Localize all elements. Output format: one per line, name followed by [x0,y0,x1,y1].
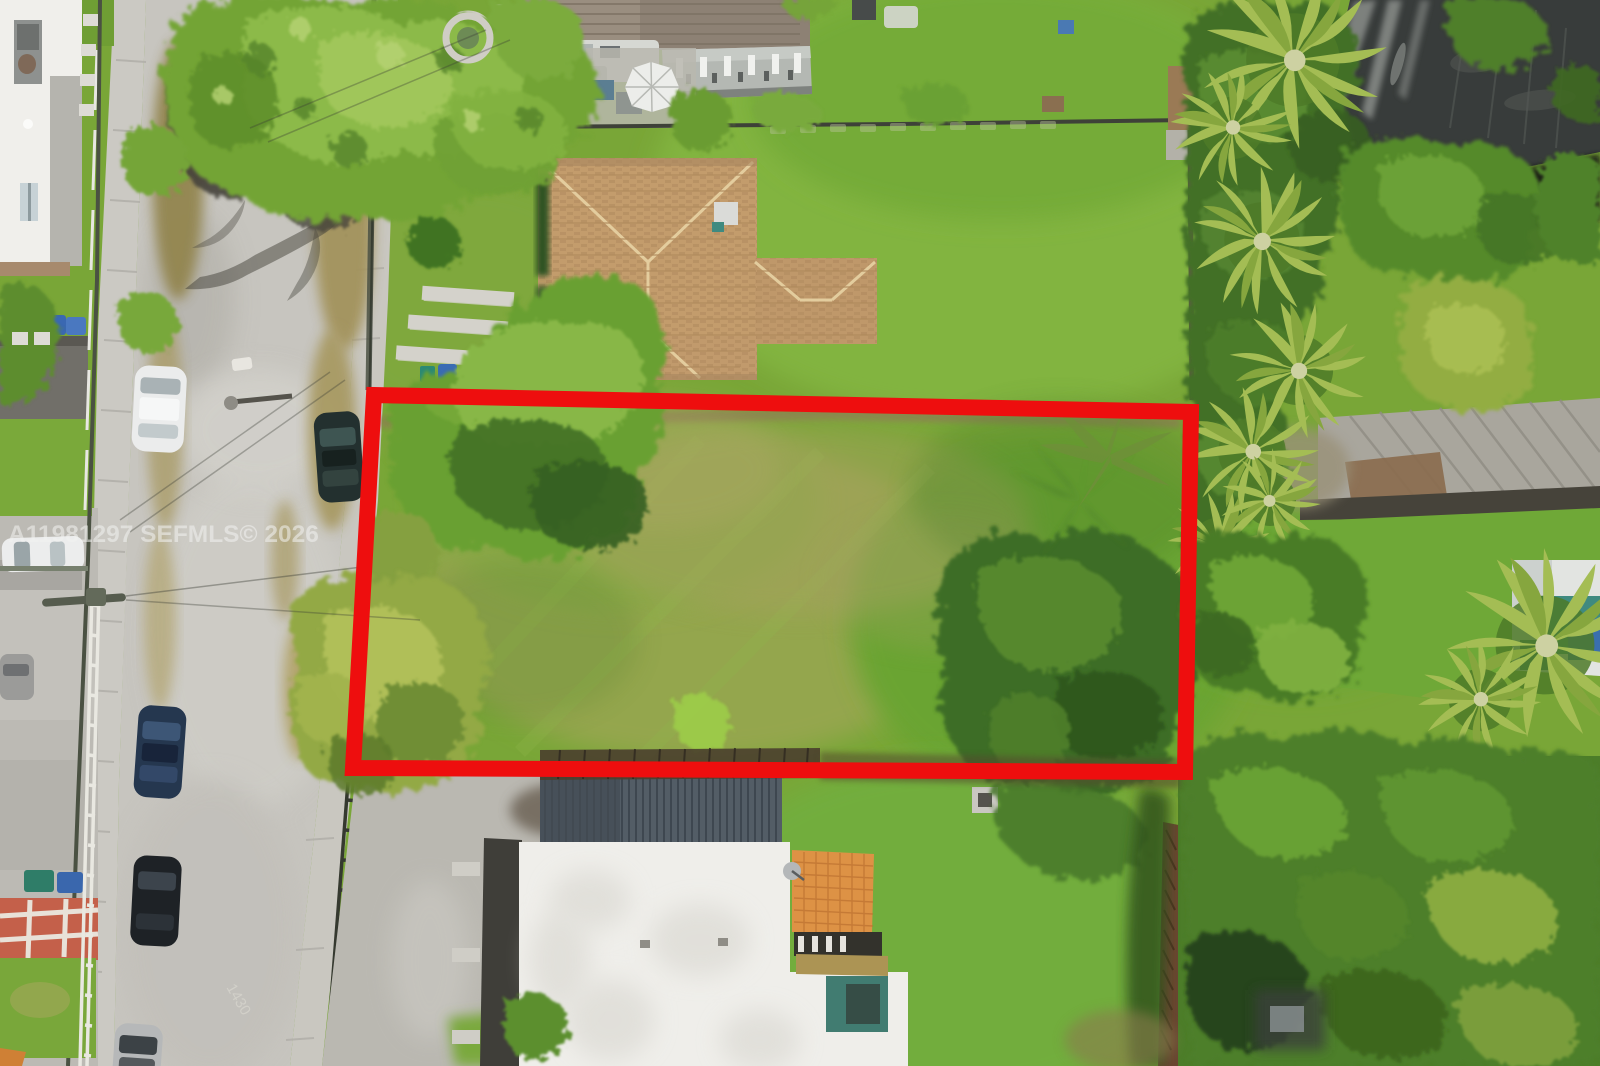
svg-text:A11981297 SEFMLS© 2026: A11981297 SEFMLS© 2026 [8,521,319,548]
